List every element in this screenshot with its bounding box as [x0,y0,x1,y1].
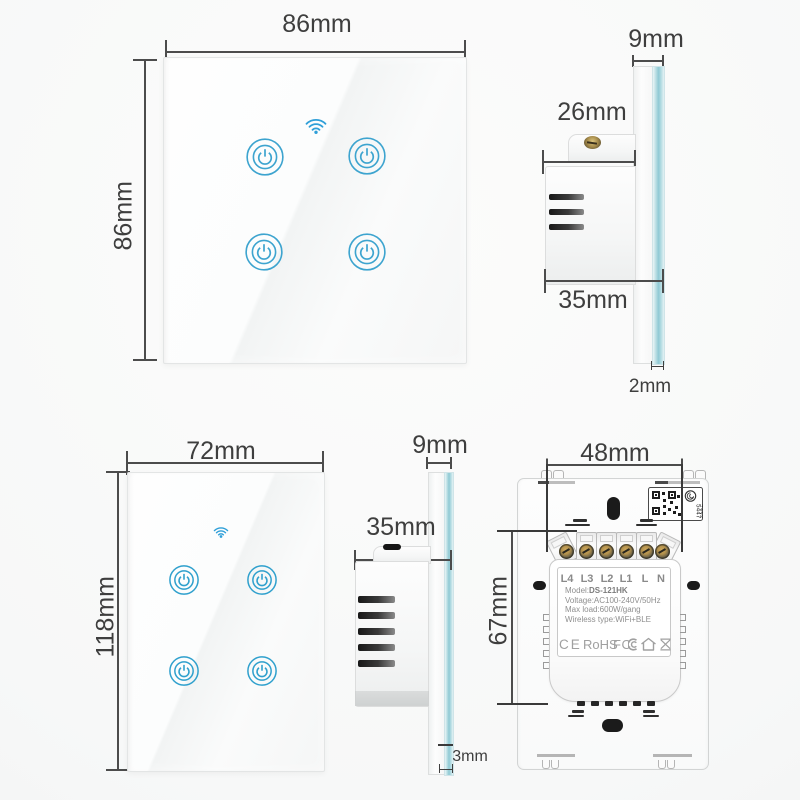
terminal-screw [655,544,670,559]
side-vent-mark [543,662,549,669]
dimension-tick [497,703,548,705]
spec-voltage-line: Voltage:AC100-240V/50Hz [565,597,661,605]
side-screw-slot [533,581,546,590]
weee-crossed-bin-icon [659,638,672,651]
extension-line [681,464,683,552]
vent-dash [572,710,584,713]
bottom-screw-hole [602,719,623,732]
spec-wireless-line: Wireless type:WiFi+BLE [565,616,651,624]
back-view: 5447 4125 L4 [0,0,800,800]
spec-model-value: DS-121HK [589,586,628,595]
vent-dash [605,701,613,706]
vent-dash [565,524,590,527]
dimension-tick [497,530,577,532]
side-vent-mark [680,650,686,657]
terminal-screw [579,544,594,559]
terminal-label: L3 [577,573,597,585]
side-vent-mark [680,638,686,645]
switch-dimension-diagram: 86mm 86mm [0,0,800,800]
qr-code-label: 5447 4125 [648,487,703,521]
spec-max-load-line: Max load:600W/gang [565,606,641,614]
spec-model-key: Model: [565,586,589,595]
vent-dash [568,715,584,718]
vent-dash [640,519,653,522]
side-vent-mark [543,650,549,657]
vent-dash [643,715,659,718]
vent-dash [591,701,599,706]
extension-line [546,464,548,552]
mount-tab [542,760,550,769]
spec-model-line: Model:DS-121HK [565,587,628,595]
qr-serial-bottom: 4125 [700,504,704,519]
top-groove [655,481,668,484]
bottom-groove [653,754,692,757]
back-terminal-span-line [547,464,682,466]
side-screw-slot [687,581,700,590]
top-groove [668,481,700,484]
terminal-screw [619,544,634,559]
top-screw-hole [607,497,620,520]
fcc-arcs-icon [628,638,638,651]
terminal-label: N [651,573,671,585]
side-vent-mark [543,638,549,645]
terminal-screw [599,544,614,559]
vent-dash [643,710,655,713]
vent-dash [633,701,641,706]
mount-tab [667,760,675,769]
side-vent-mark [543,614,549,621]
top-groove [549,481,575,484]
vent-dash [636,524,657,527]
bottom-groove [537,754,575,757]
terminal-screw [639,544,654,559]
vent-dash [619,701,627,706]
terminal-screw [559,544,574,559]
side-vent-mark [680,662,686,669]
side-vent-mark [543,626,549,633]
back-height-dimension-label: 67mm [485,561,513,661]
house-icon [640,637,657,652]
vent-dash [647,701,655,706]
vent-dash [573,519,587,522]
terminal-label: L1 [616,573,636,585]
mount-tab [551,760,559,769]
terminal-label: L4 [557,573,577,585]
mount-tab [658,760,666,769]
vent-dash [577,701,585,706]
side-vent-mark [680,626,686,633]
side-vent-mark [680,614,686,621]
ce-mark: CE [559,637,582,652]
terminal-label: L2 [597,573,617,585]
